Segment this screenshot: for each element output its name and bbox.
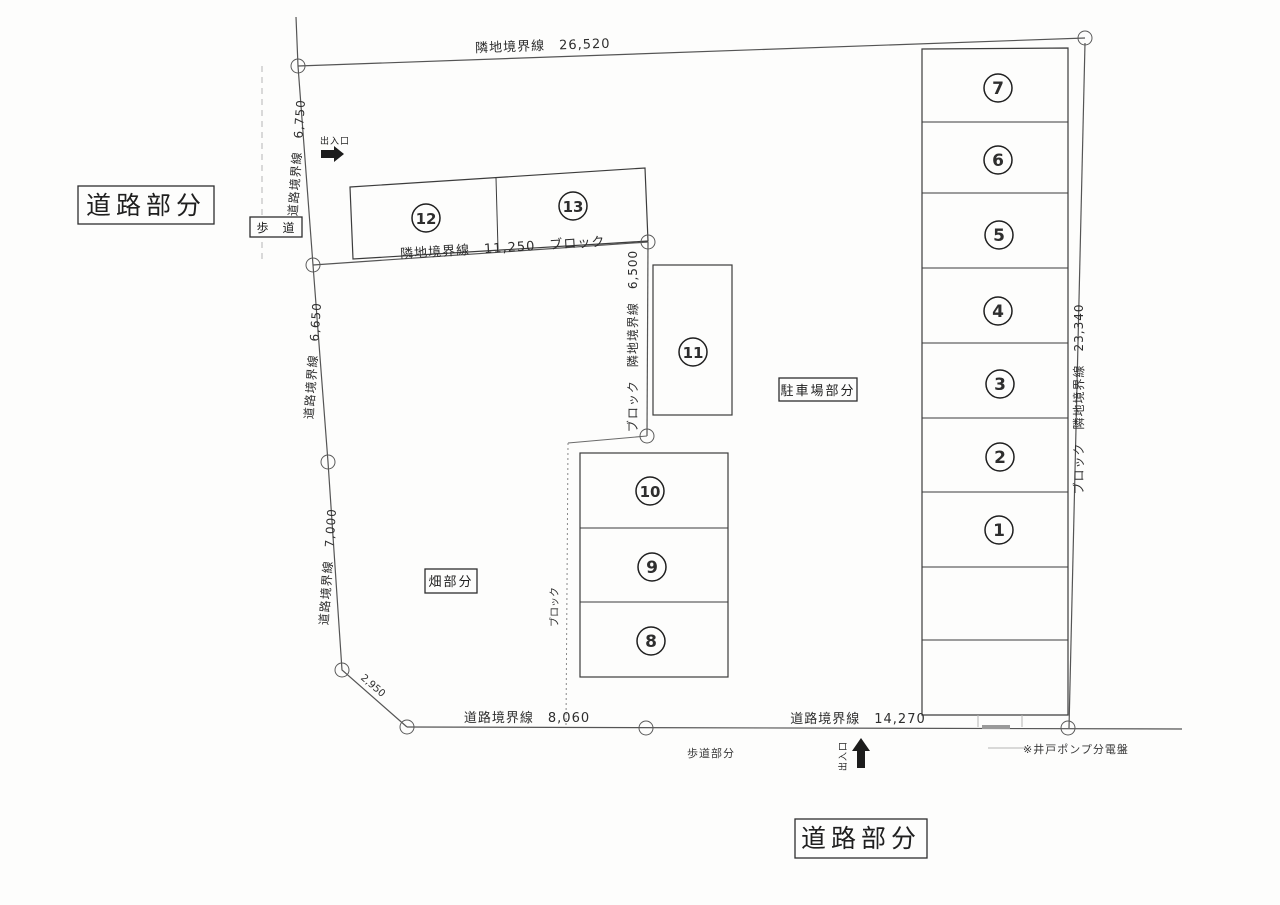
sidewalk-label-text: 歩 道	[256, 220, 295, 235]
entrance-top-label: 出入口	[320, 135, 350, 147]
inner-jog-line	[568, 436, 647, 443]
stall-number: 12	[416, 210, 437, 228]
bottom-road-boundary-line	[407, 727, 1182, 729]
stall-block-11	[653, 265, 732, 415]
dim-inner-vertical: ブロック 隣地境界線 6,500	[625, 250, 640, 432]
field-area-label: 畑部分	[425, 569, 477, 593]
entrance-bottom: 出入口	[837, 738, 870, 771]
dim-bottom-left: 道路境界線 8,060	[464, 710, 590, 726]
parking-area-label: 駐車場部分	[779, 378, 857, 401]
dim-bottom-right: 道路境界線 14,270	[790, 711, 926, 727]
stall-number: 4	[992, 302, 1004, 322]
sidewalk-label: 歩 道	[250, 217, 302, 237]
stall-number: 13	[563, 198, 584, 216]
dim-top-boundary: 隣地境界線 26,520	[475, 36, 611, 57]
entrance-up-arrow-icon	[852, 738, 870, 768]
field-area-label-text: 畑部分	[428, 575, 473, 590]
block-wall-dotted-line	[566, 443, 568, 727]
dim-right-boundary: ブロック 隣地境界線 23,340	[1071, 304, 1086, 495]
road-area-label-top-text: 道路部分	[86, 191, 206, 220]
dim-left-diagonal: 2,950	[358, 673, 387, 700]
well-pump-note: ※井戸ポンプ分電盤	[1023, 742, 1129, 756]
road-area-label-top: 道路部分	[78, 186, 214, 224]
parking-area-label-text: 駐車場部分	[780, 384, 855, 399]
stall-number: 9	[646, 558, 658, 578]
entrance-top: 出入口	[320, 135, 350, 162]
sidewalk-area-label: 歩道部分	[687, 746, 735, 760]
entrance-right-arrow-icon	[321, 146, 344, 162]
boundary-point	[1061, 721, 1075, 735]
stall-number: 11	[683, 344, 704, 362]
stall-number: 10	[640, 483, 661, 501]
stall-number: 1	[993, 521, 1005, 541]
stall-number: 3	[994, 375, 1006, 395]
stall-number: 6	[992, 151, 1004, 171]
site-plan-canvas: 12 13 11 10 9 8 7 6 5	[0, 0, 1280, 905]
inner-vertical-boundary-line	[647, 242, 648, 436]
entrance-bottom-label: 出入口	[837, 741, 849, 771]
stall-number: 2	[994, 448, 1006, 468]
dim-block-wall: ブロック	[548, 587, 561, 627]
road-area-label-bottom: 道路部分	[795, 819, 927, 858]
stall-number: 5	[993, 226, 1005, 246]
stall-number: 7	[992, 79, 1004, 99]
road-area-label-bottom-text: 道路部分	[801, 824, 921, 853]
stall-number: 8	[645, 632, 657, 652]
